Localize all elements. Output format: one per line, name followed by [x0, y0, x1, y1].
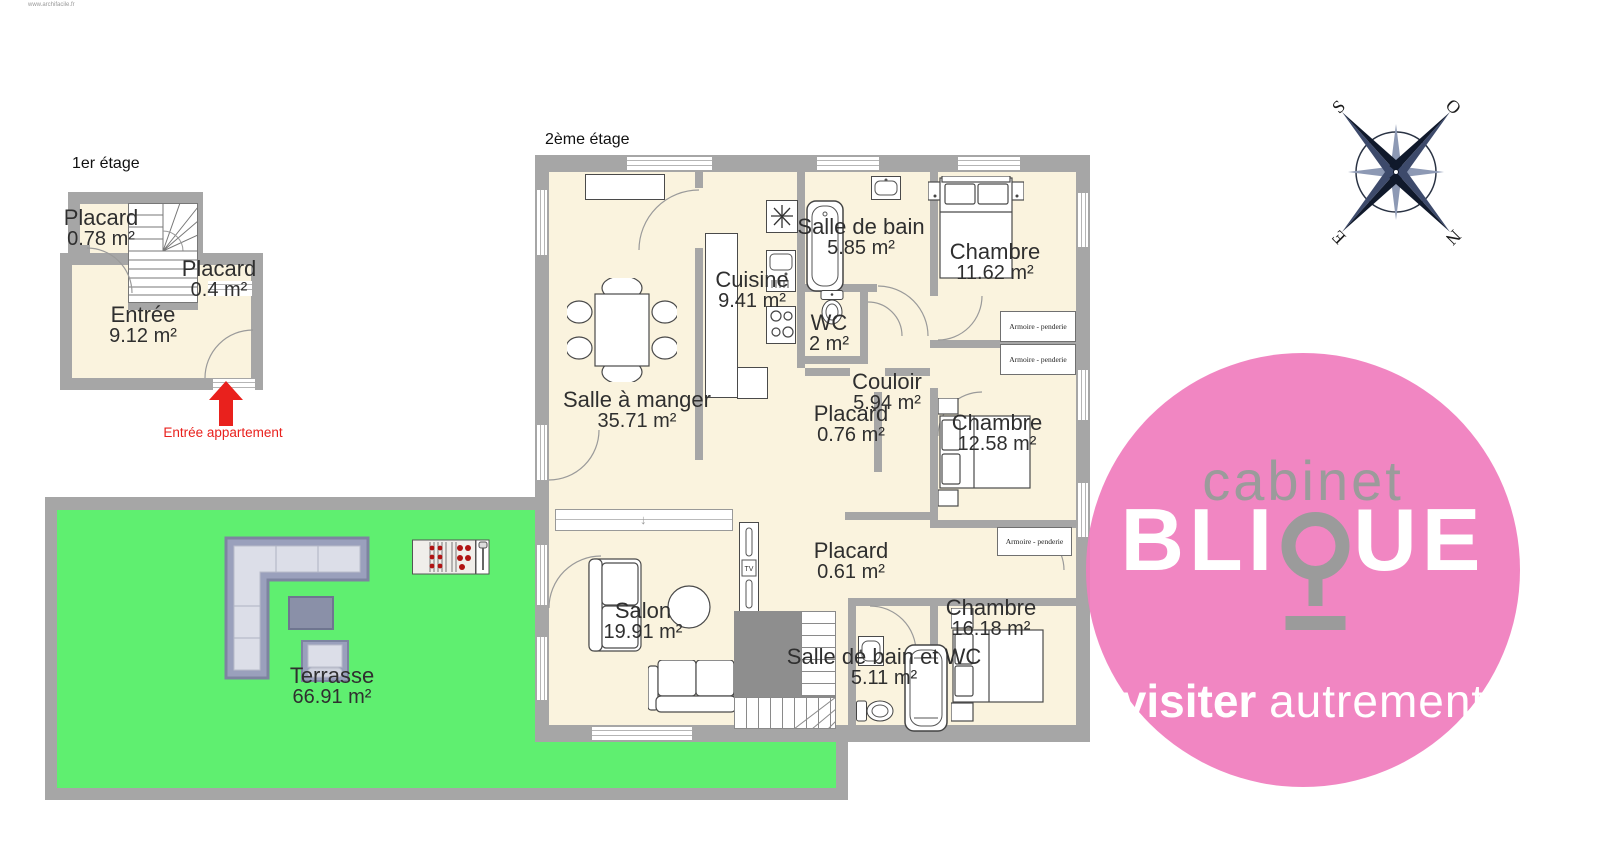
- wall: [45, 497, 549, 510]
- wardrobe: Armoire - penderie: [997, 527, 1072, 556]
- wall: [930, 388, 938, 520]
- svg-text:TV: TV: [745, 566, 754, 573]
- room-label-terrasse: Terrasse 66.91 m²: [290, 664, 374, 708]
- sofa: [648, 660, 744, 716]
- toilet: [856, 698, 896, 724]
- room-label-salle-de-bain: Salle de bain 5.85 m²: [797, 215, 924, 259]
- compass-rose: S O E N: [1328, 94, 1464, 248]
- window: [1078, 370, 1088, 420]
- bbq-grill: [412, 538, 490, 576]
- room-label-cuisine: Cuisine 9.41 m²: [715, 268, 788, 312]
- room-label-sdb-wc: Salle de bain et WC 5.11 m²: [787, 645, 981, 689]
- bathroom-sink: [871, 176, 901, 200]
- wall: [805, 356, 868, 364]
- arrow-down-icon: ↓: [640, 512, 647, 527]
- window: [537, 637, 547, 700]
- wall: [805, 368, 850, 376]
- wall: [45, 497, 57, 800]
- entrance-arrow-icon: [206, 381, 246, 427]
- floor1-title: 1er étage: [72, 155, 140, 173]
- room-label-placard-b: Placard 0.4 m²: [182, 257, 257, 301]
- logo-tagline-light: autrement: [1269, 675, 1485, 727]
- logo-word-right: UE: [1353, 496, 1485, 584]
- logo-word-left: BLI: [1120, 496, 1277, 584]
- entrance-label: Entrée appartement: [163, 425, 282, 440]
- logo-q-icon: [1277, 508, 1353, 640]
- room-label-chambre3: Chambre 16.18 m²: [946, 596, 1036, 640]
- kitchen-counter: [737, 367, 768, 399]
- terrace-ground: [535, 742, 836, 788]
- wall: [60, 253, 72, 390]
- compass-letter-e: E: [1328, 226, 1350, 248]
- wardrobe: Armoire - penderie: [1000, 311, 1076, 342]
- window: [537, 425, 547, 480]
- fridge: [766, 200, 798, 233]
- wall: [860, 292, 868, 364]
- wall: [836, 733, 848, 800]
- window: [537, 190, 547, 255]
- room-label-salle-a-manger: Salle à manger 35.71 m²: [563, 388, 711, 432]
- room-label-placard-d: Placard 0.61 m²: [814, 539, 889, 583]
- room-label-chambre1: Chambre 11.62 m²: [950, 240, 1040, 284]
- staircase-diagonals: [734, 697, 836, 729]
- compass-letter-n: N: [1442, 226, 1464, 248]
- window: [537, 545, 547, 605]
- wardrobe-label: Armoire - penderie: [1006, 537, 1063, 546]
- room-label-placard-c: Placard 0.76 m²: [814, 402, 889, 446]
- window: [817, 157, 879, 170]
- window: [592, 727, 692, 740]
- window: [627, 157, 712, 170]
- compass-letter-o: O: [1442, 95, 1464, 118]
- room-label-placard-a: Placard 0.78 m²: [64, 206, 139, 250]
- wardrobe-label: Armoire - penderie: [1009, 355, 1066, 364]
- room-label-entree: Entrée 9.12 m²: [109, 303, 177, 347]
- coffee-table: [288, 596, 334, 630]
- room-label-chambre2: Chambre 12.58 m²: [952, 411, 1042, 455]
- wall: [848, 598, 930, 606]
- wall: [797, 172, 805, 368]
- floor2-title: 2ème étage: [545, 131, 630, 149]
- wardrobe-label: Armoire - penderie: [1009, 322, 1066, 331]
- floorplan-canvas: www.archifacile.fr: [0, 0, 1600, 852]
- kitchen-counter: [705, 233, 738, 398]
- logo-tagline: visiter autrement: [1121, 674, 1485, 728]
- window: [958, 157, 1020, 170]
- logo-wordmark: BLI UE: [1120, 496, 1485, 640]
- wall: [845, 512, 930, 520]
- compass-letter-s: S: [1328, 96, 1349, 117]
- watermark: www.archifacile.fr: [28, 2, 75, 8]
- wall: [45, 788, 848, 800]
- window: [1078, 483, 1088, 537]
- wardrobe: Armoire - penderie: [1000, 344, 1076, 375]
- wall: [695, 172, 703, 188]
- sideboard: [585, 174, 665, 200]
- room-label-salon: Salon 19.91 m²: [604, 599, 683, 643]
- beam: ↓: [555, 509, 733, 531]
- window: [1078, 193, 1088, 247]
- dining-table: [567, 278, 677, 382]
- tv-unit: TV: [739, 522, 759, 614]
- room-label-wc: WC 2 m²: [809, 311, 849, 355]
- logo-tagline-bold: visiter: [1121, 675, 1257, 727]
